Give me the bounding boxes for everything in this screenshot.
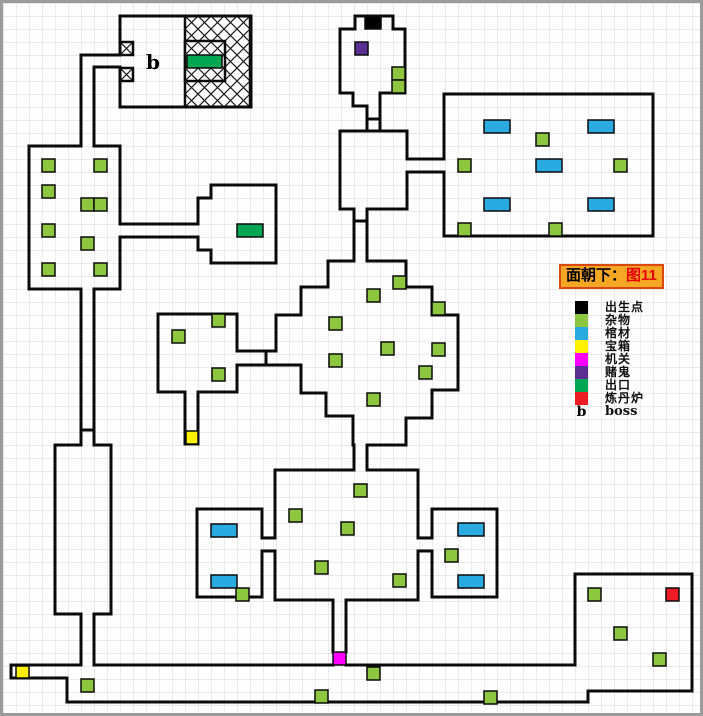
marker-junk [393, 276, 406, 289]
marker-junk [392, 67, 405, 80]
grid-lines [3, 3, 703, 716]
marker-coffin [211, 524, 237, 537]
marker-coffin [588, 198, 614, 211]
marker-junk [341, 522, 354, 535]
marker-junk [367, 393, 380, 406]
marker-junk [458, 223, 471, 236]
marker-junk [381, 342, 394, 355]
marker-coffin [458, 523, 484, 536]
marker-junk [653, 653, 666, 666]
marker-junk [94, 198, 107, 211]
marker-chest [186, 431, 198, 444]
marker-junk [42, 159, 55, 172]
marker-junk [212, 368, 225, 381]
marker-junk [588, 588, 601, 601]
marker-spawn [365, 16, 381, 29]
marker-junk [458, 159, 471, 172]
marker-junk [81, 198, 94, 211]
marker-junk [329, 354, 342, 367]
marker-junk [419, 366, 432, 379]
marker-junk [614, 627, 627, 640]
marker-exit [187, 55, 222, 68]
marker-junk [94, 263, 107, 276]
hatch-area [120, 42, 133, 55]
marker-junk [432, 343, 445, 356]
marker-trap [333, 652, 346, 665]
marker-junk [81, 237, 94, 250]
marker-junk [329, 317, 342, 330]
marker-junk [42, 224, 55, 237]
marker-junk [614, 159, 627, 172]
dungeon-map-screenshot: b 面朝下：图11 出生点杂物棺材宝箱机关赌鬼出口炼丹炉bboss [0, 0, 703, 716]
marker-coffin [211, 575, 237, 588]
marker-junk [484, 691, 497, 704]
marker-junk [392, 80, 405, 93]
marker-junk [212, 314, 225, 327]
marker-junk [236, 588, 249, 601]
marker-junk [172, 330, 185, 343]
marker-junk [81, 679, 94, 692]
marker-junk [549, 223, 562, 236]
marker-coffin [484, 120, 510, 133]
marker-exit [237, 224, 263, 237]
marker-junk [315, 690, 328, 703]
marker-junk [94, 159, 107, 172]
marker-chest [16, 666, 29, 678]
boss-label: b [146, 50, 160, 74]
map-labels: b [146, 50, 160, 74]
dungeon-map: b [3, 3, 703, 716]
marker-junk [432, 302, 445, 315]
marker-junk [315, 561, 328, 574]
marker-junk [367, 289, 380, 302]
marker-junk [393, 574, 406, 587]
marker-furnace [666, 588, 679, 601]
marker-junk [367, 667, 380, 680]
marker-coffin [458, 575, 484, 588]
marker-junk [536, 133, 549, 146]
marker-gambler [355, 42, 368, 55]
marker-junk [354, 484, 367, 497]
hatch-area [120, 68, 133, 81]
marker-junk [42, 263, 55, 276]
marker-coffin [536, 159, 562, 172]
marker-coffin [484, 198, 510, 211]
marker-junk [42, 185, 55, 198]
marker-junk [445, 549, 458, 562]
marker-junk [289, 509, 302, 522]
marker-coffin [588, 120, 614, 133]
